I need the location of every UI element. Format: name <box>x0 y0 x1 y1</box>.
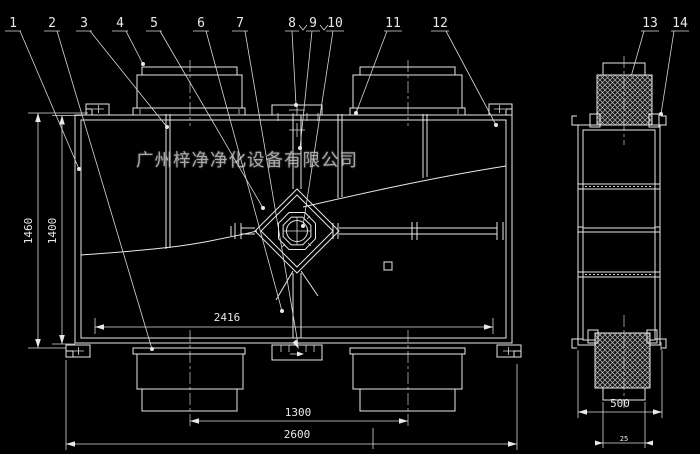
base-foot-right <box>497 345 521 357</box>
top-port-right <box>350 60 465 126</box>
callout-6: 6 <box>197 16 205 31</box>
dim-500: 500 <box>610 397 630 410</box>
callout-10: 10 <box>327 16 343 31</box>
callout-5: 5 <box>150 16 158 31</box>
dimension-height-inner: 1400 <box>46 116 82 345</box>
side-body <box>572 116 666 350</box>
drain-tray <box>272 345 322 360</box>
dim-2416: 2416 <box>214 311 241 324</box>
fan-assembly <box>231 189 503 338</box>
callout-1: 1 <box>9 16 17 31</box>
callout-2: 2 <box>48 16 56 31</box>
callout-4: 4 <box>116 16 124 31</box>
base-foot-left <box>66 345 90 357</box>
lifting-lug-left <box>86 104 109 115</box>
dim-25: 25 <box>620 435 628 443</box>
bottom-port-right <box>350 330 465 428</box>
callout-8: 8 <box>288 16 296 31</box>
dimension-overall-width: 2600 <box>66 360 517 450</box>
dim-1400: 1400 <box>46 218 59 245</box>
company-watermark: 广州梓净净化设备有限公司 <box>136 151 358 171</box>
hepa-filter-bottom <box>588 315 657 408</box>
callout-12: 12 <box>432 16 448 31</box>
lifting-lug-right <box>489 104 512 115</box>
inspection-square <box>384 262 392 270</box>
front-view <box>66 60 521 428</box>
dim-1300: 1300 <box>285 406 312 419</box>
cad-drawing-canvas: 2416 1300 2600 1460 1400 <box>0 0 700 454</box>
side-view: 500 25 <box>572 56 666 448</box>
side-dividers <box>578 184 660 277</box>
interior-panels <box>166 114 427 249</box>
cad-drawing: 2416 1300 2600 1460 1400 <box>0 0 700 454</box>
hepa-filter-top <box>590 56 659 145</box>
callout-3: 3 <box>80 16 88 31</box>
top-port-left <box>133 60 245 126</box>
callout-11: 11 <box>385 16 401 31</box>
dim-1460: 1460 <box>22 218 35 245</box>
bottom-port-left <box>133 330 245 428</box>
leader-lines <box>20 31 674 351</box>
dim-2600: 2600 <box>284 428 311 441</box>
callout-7: 7 <box>236 16 244 31</box>
callout-9: 9 <box>309 16 317 31</box>
callout-14: 14 <box>672 16 688 31</box>
callout-13: 13 <box>642 16 658 31</box>
dimension-port-spacing: 1300 <box>190 406 408 424</box>
